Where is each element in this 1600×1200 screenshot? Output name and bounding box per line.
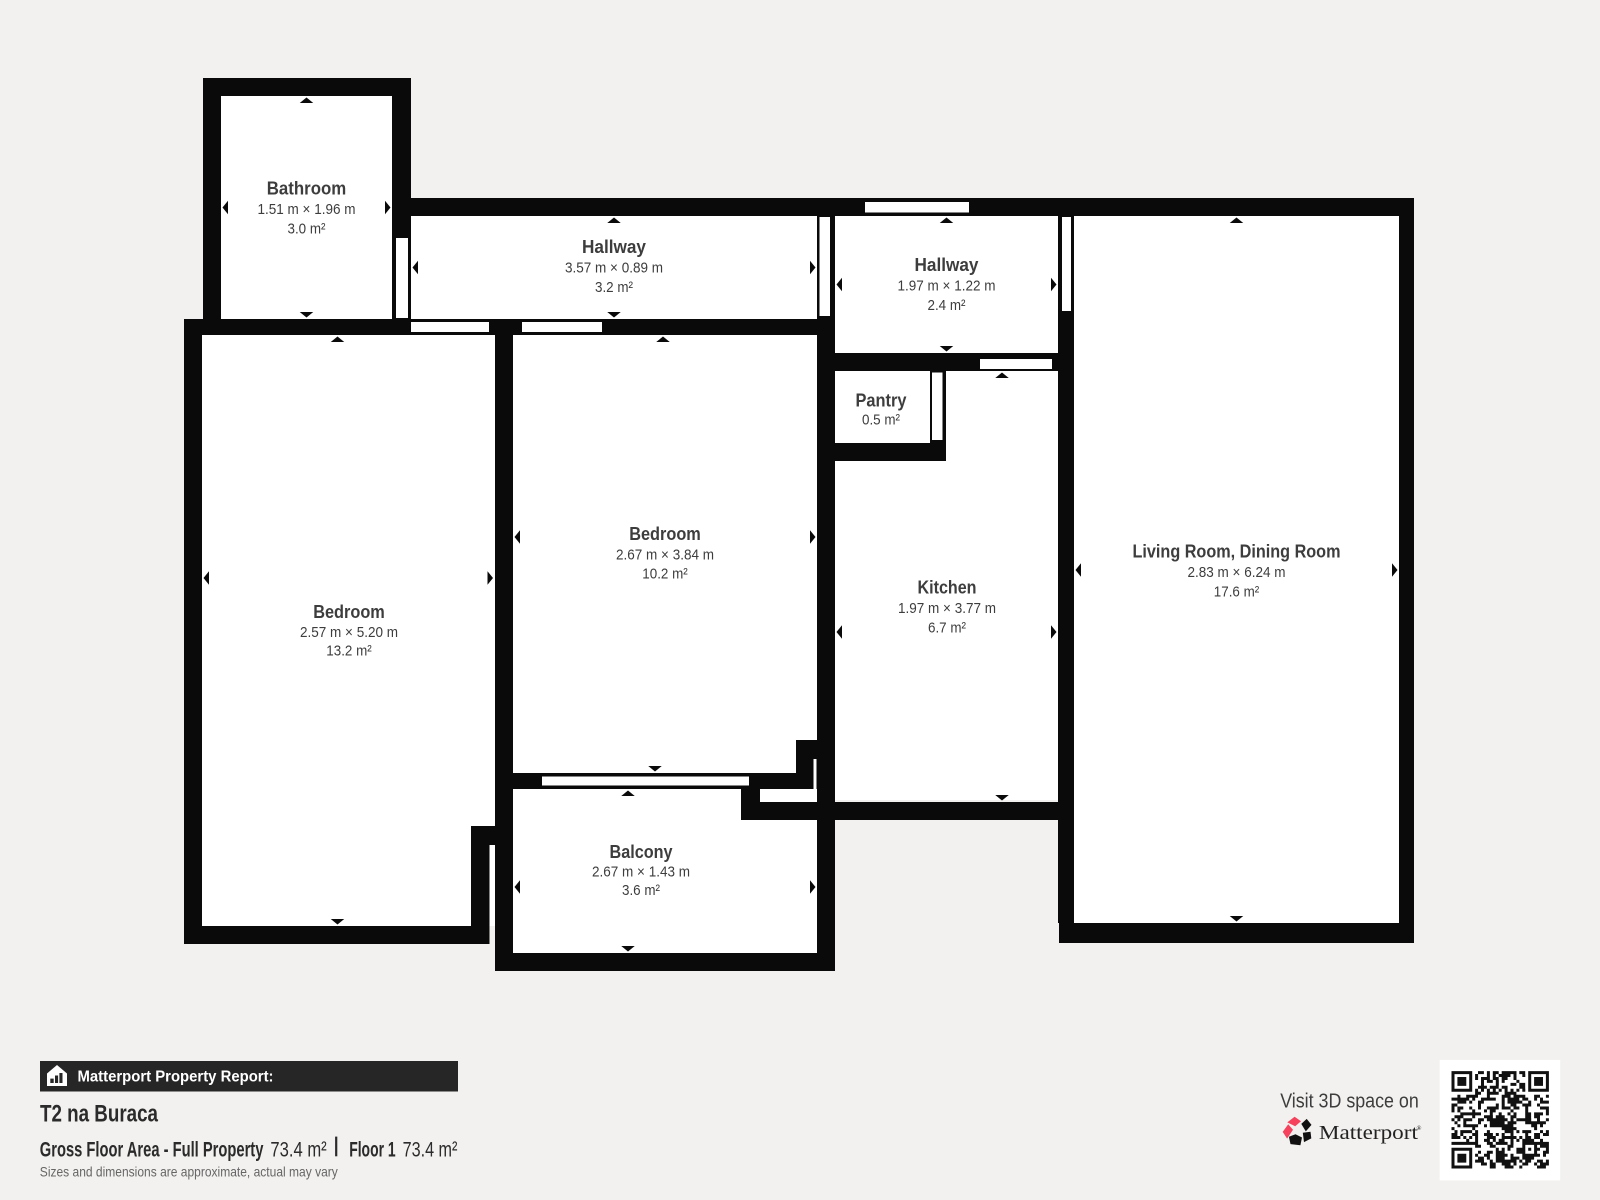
svg-text:13.2 m²: 13.2 m² — [326, 643, 371, 660]
svg-text:Kitchen: Kitchen — [918, 577, 977, 598]
svg-text:2.57 m × 5.20 m: 2.57 m × 5.20 m — [300, 624, 398, 641]
svg-text:Bathroom: Bathroom — [267, 178, 347, 199]
svg-text:Bedroom: Bedroom — [629, 523, 701, 544]
svg-text:Matterport: Matterport — [1319, 1123, 1419, 1144]
svg-text:Visit 3D space on: Visit 3D space on — [1280, 1091, 1419, 1113]
svg-text:0.5 m²: 0.5 m² — [862, 412, 900, 429]
svg-text:3.6 m²: 3.6 m² — [622, 882, 660, 899]
svg-text:Bedroom: Bedroom — [313, 601, 385, 622]
svg-text:T2 na Buraca: T2 na Buraca — [40, 1101, 159, 1128]
svg-text:Floor 1: Floor 1 — [349, 1137, 395, 1161]
svg-text:Matterport Property Report:: Matterport Property Report: — [78, 1069, 274, 1086]
svg-text:Hallway: Hallway — [582, 236, 647, 257]
svg-text:10.2 m²: 10.2 m² — [642, 566, 687, 583]
svg-text:Gross Floor Area - Full Proper: Gross Floor Area - Full Property — [40, 1137, 264, 1161]
svg-text:2.83 m × 6.24 m: 2.83 m × 6.24 m — [1188, 564, 1286, 581]
svg-text:1.97 m × 3.77 m: 1.97 m × 3.77 m — [898, 600, 996, 617]
svg-text:2.67 m × 1.43 m: 2.67 m × 1.43 m — [592, 864, 690, 881]
svg-text:73.4 m²: 73.4 m² — [403, 1137, 458, 1161]
svg-text:3.0 m²: 3.0 m² — [288, 221, 326, 238]
svg-text:1.97 m × 1.22 m: 1.97 m × 1.22 m — [898, 278, 996, 295]
svg-text:3.2 m²: 3.2 m² — [595, 279, 633, 296]
svg-text:6.7 m²: 6.7 m² — [928, 620, 966, 637]
svg-text:®: ® — [1417, 1125, 1422, 1132]
svg-text:2.67 m × 3.84 m: 2.67 m × 3.84 m — [616, 547, 714, 564]
svg-text:3.57 m × 0.89 m: 3.57 m × 0.89 m — [565, 260, 663, 277]
svg-text:Pantry: Pantry — [856, 390, 908, 411]
svg-text:Balcony: Balcony — [610, 841, 674, 862]
svg-text:Hallway: Hallway — [915, 254, 980, 275]
svg-text:2.4 m²: 2.4 m² — [928, 297, 966, 314]
svg-text:17.6 m²: 17.6 m² — [1214, 584, 1259, 601]
svg-text:73.4 m²: 73.4 m² — [270, 1137, 326, 1161]
svg-text:1.51 m × 1.96 m: 1.51 m × 1.96 m — [258, 201, 356, 218]
svg-text:Sizes and dimensions are appro: Sizes and dimensions are approximate, ac… — [40, 1164, 338, 1180]
svg-text:Living Room, Dining Room: Living Room, Dining Room — [1133, 541, 1341, 562]
